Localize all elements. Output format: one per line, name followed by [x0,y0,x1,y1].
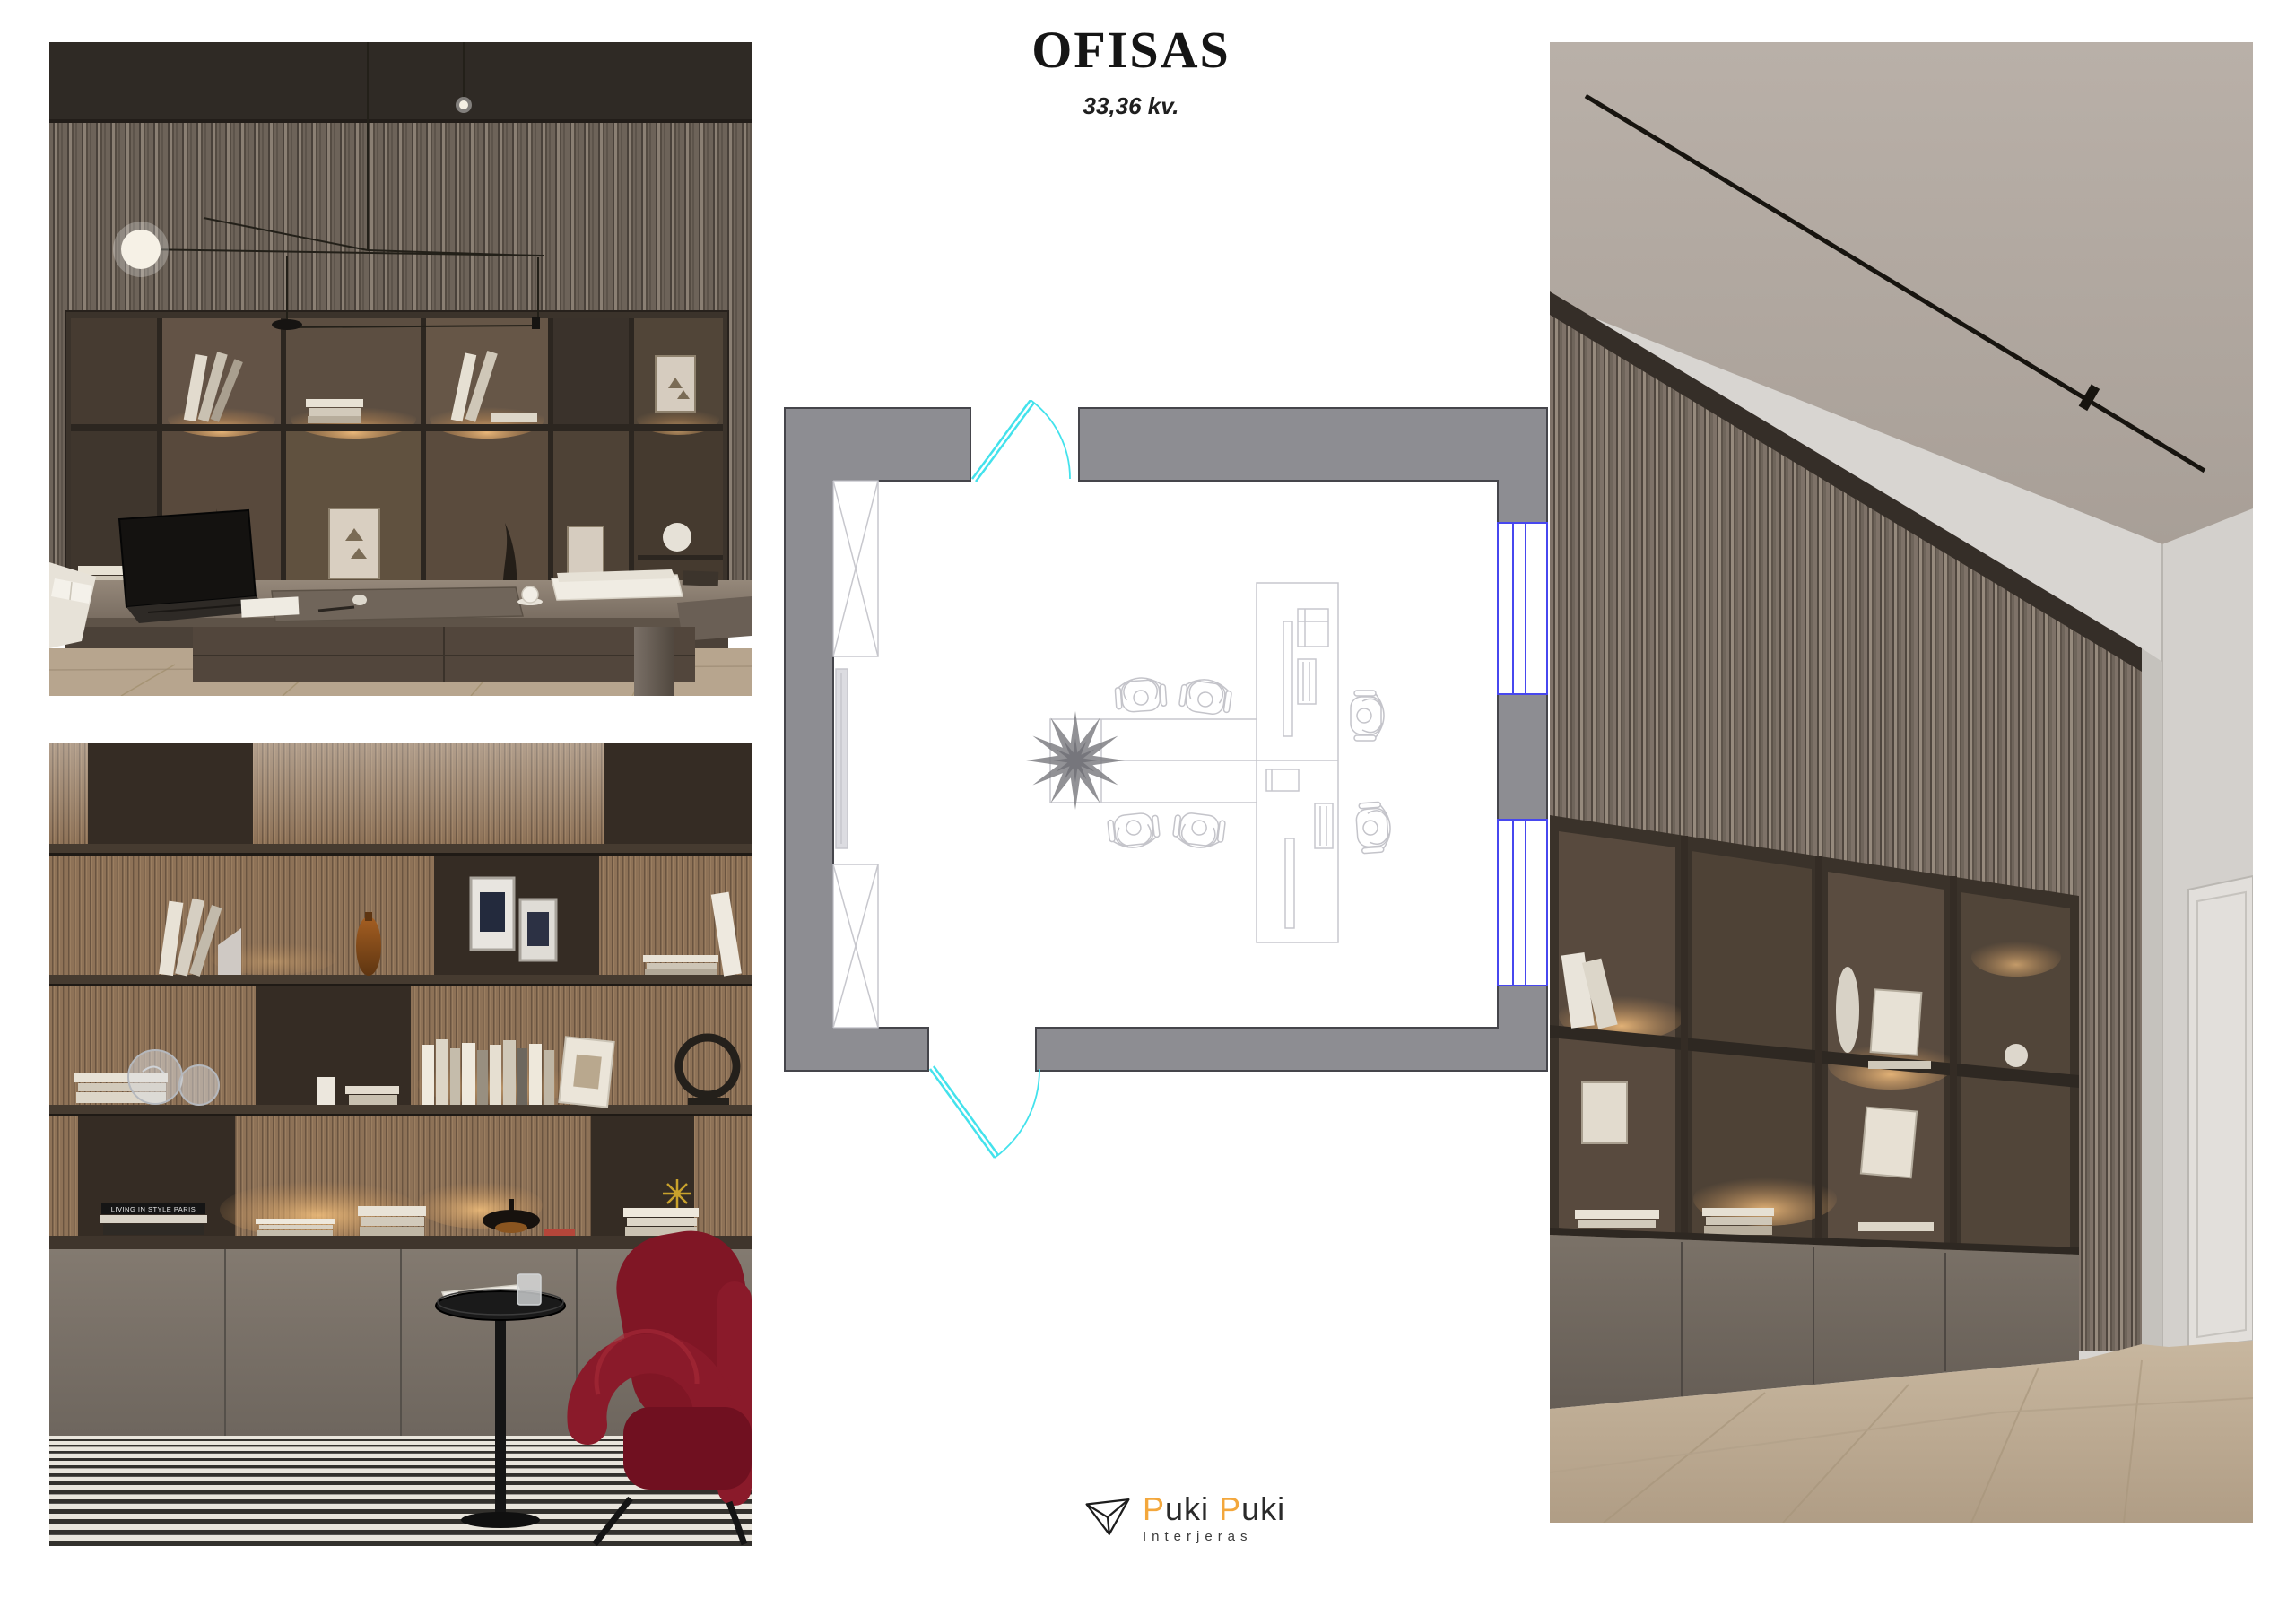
entrance-door-bottom [930,1066,1039,1158]
photo-office-corner [1550,42,2253,1523]
cylinder-leg [634,627,674,696]
wardrobe-lower [833,864,878,1028]
photo-office-desk [49,42,752,696]
brand-tagline: Interjeras [1143,1529,1285,1544]
glass-tumbler [517,1274,541,1305]
area-subtitle: 33,36 kv. [1083,92,1179,120]
sphere-vase [2005,1044,2028,1067]
framed-art [1871,989,1922,1055]
white-vase [1836,967,1859,1053]
triangle-mark-icon [1083,1496,1132,1537]
entrance-door-top [972,400,1070,482]
glowing-sphere-lamp [121,230,161,269]
photo-shelf-lounge: LIVING IN STYLE PARIS [49,743,752,1546]
window-upper [1498,523,1547,694]
coffee-cup [522,586,538,603]
wall-shelf-unit [1550,815,2079,1277]
desk-pad [272,587,523,621]
ceiling-band [49,42,752,119]
framed-art [1861,1108,1917,1178]
candle [317,1077,335,1105]
framed-art [656,356,695,412]
printer [1298,609,1328,647]
mouse [352,595,367,605]
keyboard [1315,803,1333,848]
brand-name: Puki Puki [1143,1492,1285,1526]
monitor [1283,621,1292,736]
small-bulb [459,100,468,109]
black-book-stack: LIVING IN STYLE PARIS [100,1203,207,1235]
dual-workstation-desk [1257,583,1338,942]
floor-plan [784,400,1548,1162]
brand-logo: Puki Puki Interjeras [1083,1492,1285,1544]
wardrobe-upper [833,481,878,656]
amber-vase [356,916,381,976]
door [2188,876,2253,1348]
disc-shade [272,319,302,330]
tray [683,570,719,586]
book-spine-text: LIVING IN STYLE PARIS [111,1205,196,1213]
red-booklet [544,1229,575,1236]
page-title: OFISAS [1031,20,1231,80]
keyboard [1298,659,1316,704]
framed-art [1582,1082,1627,1143]
glass-sculpture [179,1065,219,1105]
presentation-board: OFISAS 33,36 kv. [0,0,2296,1607]
glass-sculpture [128,1050,182,1104]
monitor [1285,838,1294,928]
notepad [241,596,300,617]
window-lower [1498,820,1547,986]
book-stack [306,399,363,423]
